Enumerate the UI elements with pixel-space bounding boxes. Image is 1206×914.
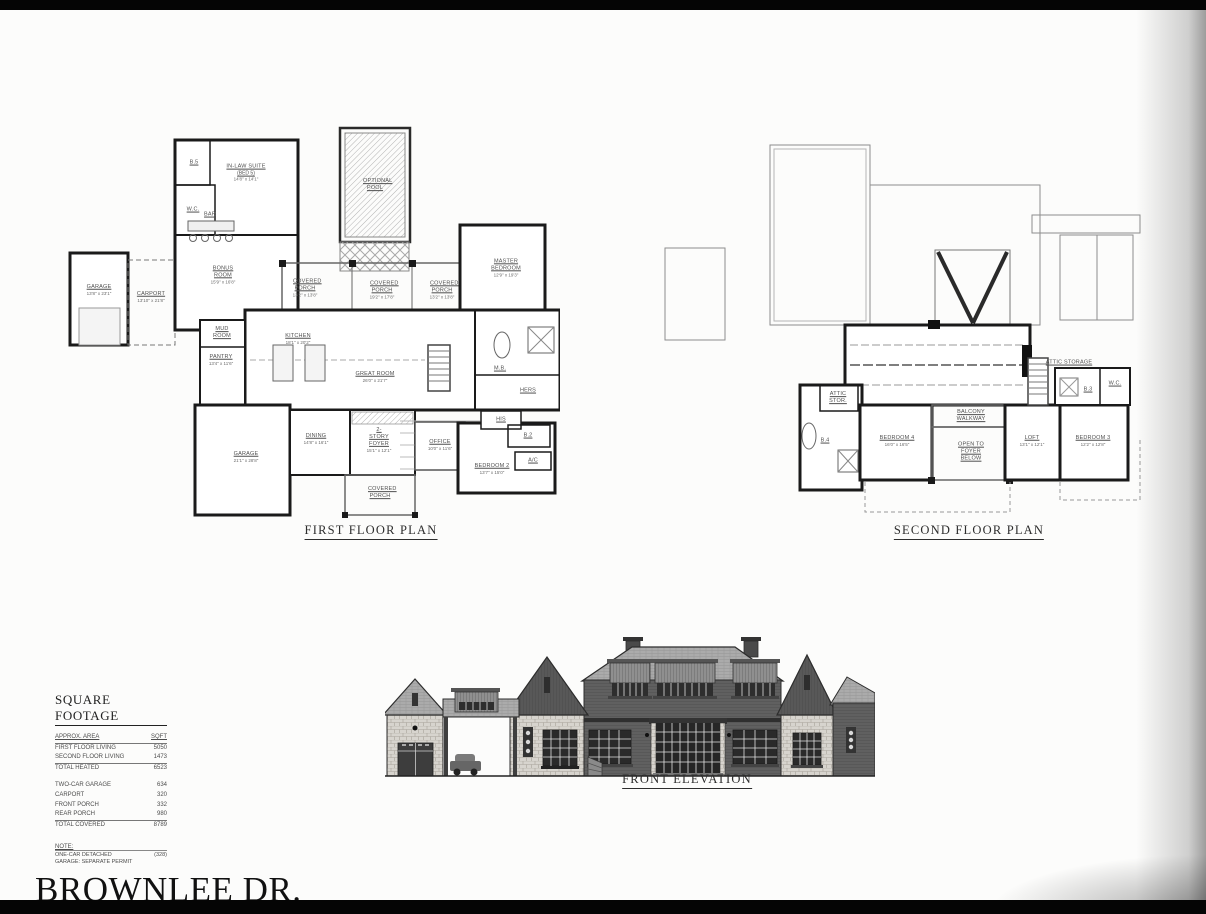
table-row: SECOND FLOOR LIVING 1473: [55, 753, 167, 764]
row-label: TOTAL HEATED: [55, 764, 99, 774]
carport-outline: [128, 260, 175, 345]
carport-elevation: [443, 688, 519, 776]
table-row: TOTAL HEATED 6523: [55, 764, 167, 774]
note-text: ONE-CAR DETACHED GARAGE: SEPARATE PERMIT: [55, 852, 135, 866]
first-floor-plan: B.5 W.C. IN-LAW SUITE (BED 5) 14'8" x 14…: [60, 125, 560, 525]
table-row: REAR PORCH 980: [55, 810, 167, 821]
front-elevation-drawing: [385, 635, 875, 780]
row-label: FIRST FLOOR LIVING: [55, 744, 116, 754]
row-value: 332: [157, 801, 167, 811]
table-header-row: APPROX. AREA SQFT: [55, 733, 167, 744]
drawing-sheet: B.5 W.C. IN-LAW SUITE (BED 5) 14'8" x 14…: [0, 10, 1206, 900]
second-floor-plan-drawing: [660, 140, 1155, 520]
table-row: FRONT PORCH 332: [55, 801, 167, 811]
left-wing: [175, 140, 298, 330]
detached-garage-elevation: [385, 679, 447, 776]
optional-pool: [340, 128, 410, 271]
note-value: (328): [154, 852, 167, 866]
row-value: 1473: [154, 753, 167, 763]
garage-door: [398, 743, 433, 776]
row-value: 980: [157, 810, 167, 820]
table-row: FIRST FLOOR LIVING 5050: [55, 744, 167, 754]
roof-outlines: [665, 145, 1140, 340]
row-value: 8789: [154, 821, 167, 831]
roof-gable-marker: [935, 250, 1010, 325]
stairs: [1028, 358, 1048, 405]
detached-garage: [70, 253, 128, 345]
vaulted-band: [845, 320, 1032, 405]
main-body: [245, 310, 560, 410]
photo-top-border: [0, 0, 1206, 10]
second-floor-plan: ATTIC STOR. B.4 BEDROOM 4 16'0" x 16'5" …: [660, 140, 1155, 520]
row-label: FRONT PORCH: [55, 801, 99, 811]
dormer-windows: [607, 659, 780, 699]
row-value: 320: [157, 791, 167, 801]
row-label: TOTAL COVERED: [55, 821, 105, 831]
table-row: TWO-CAR GARAGE 634: [55, 781, 167, 791]
square-footage-table: SQUARE FOOTAGE APPROX. AREA SQFT FIRST F…: [55, 692, 167, 867]
photo-bottom-border: [0, 900, 1206, 914]
row-value: 634: [157, 781, 167, 791]
row-label: CARPORT: [55, 791, 84, 801]
row-label: TWO-CAR GARAGE: [55, 781, 111, 791]
second-floor-plan-title: SECOND FLOOR PLAN: [894, 523, 1044, 540]
row-value: 5050: [154, 744, 167, 754]
table-row: CARPORT 320: [55, 791, 167, 801]
col-header-area: APPROX. AREA: [55, 733, 99, 743]
blueprint-sheet-photo: B.5 W.C. IN-LAW SUITE (BED 5) 14'8" x 14…: [0, 0, 1206, 914]
mud-pantry: [200, 320, 245, 410]
col-header-sqft: SQFT: [151, 733, 167, 743]
table-row: TOTAL COVERED 8789: [55, 821, 167, 831]
row-label: REAR PORCH: [55, 810, 95, 820]
stairs: [428, 345, 450, 391]
right-wing: [830, 677, 875, 776]
master-wing: [460, 225, 545, 310]
front-elevation: [385, 635, 875, 780]
note-row: ONE-CAR DETACHED GARAGE: SEPARATE PERMIT…: [55, 850, 167, 866]
entry-doors: [645, 718, 731, 776]
attached-garage: [195, 405, 290, 515]
first-floor-plan-title: FIRST FLOOR PLAN: [305, 523, 438, 540]
first-floor-plan-drawing: [60, 125, 560, 525]
square-footage-title: SQUARE FOOTAGE: [55, 692, 167, 726]
row-label: SECOND FLOOR LIVING: [55, 753, 124, 763]
dining-room-walls: [290, 410, 350, 475]
row-value: 6523: [154, 764, 167, 774]
front-porch: [342, 475, 418, 518]
right-gable: [777, 655, 837, 776]
bedroom2-wing: [458, 411, 555, 493]
foyer-walls: [350, 410, 415, 475]
car-icon: [450, 754, 481, 776]
front-elevation-title: FRONT ELEVATION: [622, 772, 752, 789]
